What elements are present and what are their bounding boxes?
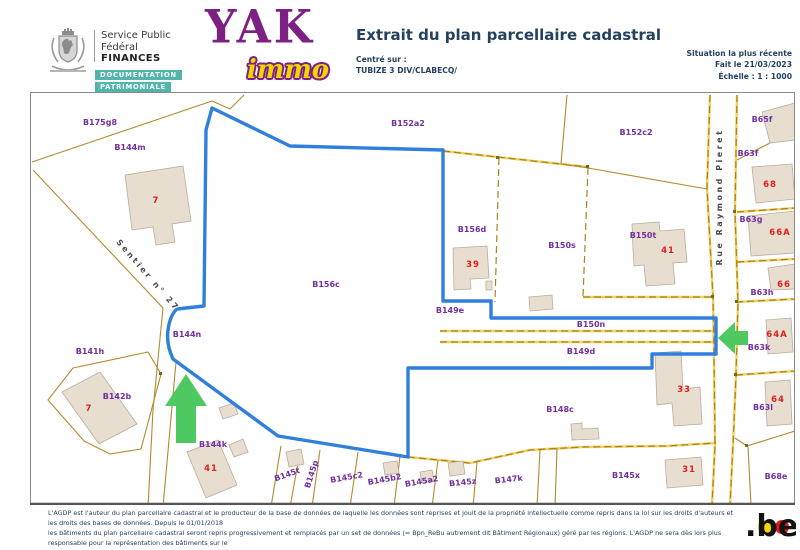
title-block: Extrait du plan parcellaire cadastral Ce… (356, 26, 661, 76)
parcel-label: B63h (751, 288, 774, 297)
meta-scale: Échelle : 1 : 1000 (687, 71, 792, 82)
parcel-label: B144m (114, 143, 145, 152)
meta-situation: Situation la plus récente (687, 48, 792, 59)
parcel-label: B148c (546, 405, 574, 414)
house-number: 64 (771, 395, 785, 405)
parcel-label: B68e (765, 472, 788, 481)
dot-be-logo: .be (744, 503, 796, 545)
parcel-label: B150n (577, 320, 606, 329)
parcel-label: B141h (76, 347, 105, 356)
house-number: 66 (777, 280, 791, 290)
parcel-label: B63f (738, 149, 759, 158)
disclaimer-line1: L'AGDP est l'auteur du plan parcellaire … (48, 509, 736, 529)
house-number: 68 (763, 180, 777, 190)
centered-on: Centré sur : TUBIZE 3 DIV/CLABECQ/ (356, 54, 661, 76)
parcel-label: B145x (612, 471, 641, 480)
header: Service Public Fédéral FINANCES DOCUMENT… (0, 0, 800, 92)
badge-patrimoniale: PATRIMONIALE (95, 82, 171, 93)
agency-line1: Service Public (101, 30, 171, 42)
page-title: Extrait du plan parcellaire cadastral (356, 26, 661, 44)
house-number: 64A (766, 330, 787, 340)
brand-sub: immo (247, 55, 329, 85)
parcel-label: B175g8 (83, 118, 118, 127)
disclaimer-text: L'AGDP est l'auteur du plan parcellaire … (48, 509, 736, 550)
parcel-label: B150t (630, 231, 657, 240)
map-meta: Situation la plus récente Fait le 21/03/… (687, 48, 792, 82)
parcel-label: B144k (199, 440, 228, 449)
map-svg: B175g8B144mB152a2B152c2B65fB63fB156dB150… (30, 92, 795, 505)
cadastral-map: B175g8B144mB152a2B152c2B65fB63fB156dB150… (30, 92, 795, 505)
svg-text:.be: .be (745, 509, 796, 544)
agency-line2: Fédéral (101, 42, 171, 54)
parcel-label: B65f (752, 115, 773, 124)
house-number: 7 (86, 404, 93, 414)
house-number: 41 (661, 246, 675, 256)
house-number: 7 (153, 196, 160, 206)
parcel-label: B149d (567, 347, 596, 356)
parcel-label: B144n (173, 330, 202, 339)
yak-immo-logo: YAK immo (185, 6, 335, 99)
parcel-label: B142b (103, 392, 132, 401)
agency-badges: DOCUMENTATION PATRIMONIALE (95, 62, 182, 94)
house-number: 41 (204, 464, 218, 474)
parcel-label: B152c2 (619, 128, 652, 137)
brand-name: YAK (185, 5, 335, 51)
house-number: 66A (769, 228, 790, 238)
meta-date: Fait le 21/03/2023 (687, 59, 792, 70)
parcel-label: B152a2 (391, 119, 425, 128)
parcel-label: B149e (436, 306, 465, 315)
parcel-label: B150s (548, 241, 576, 250)
house-number: 39 (466, 260, 480, 270)
parcel-label: B63k (748, 343, 771, 352)
centered-on-value: TUBIZE 3 DIV/CLABECQ/ (356, 66, 457, 75)
coat-of-arms-icon (48, 28, 88, 74)
divider (94, 30, 95, 62)
centered-on-label: Centré sur : (356, 55, 407, 64)
parcel-label: B156d (458, 225, 487, 234)
parcel-label: B156c (312, 280, 340, 289)
page: Service Public Fédéral FINANCES DOCUMENT… (0, 0, 800, 550)
street-label: Rue Raymond Pieret (715, 129, 724, 266)
parcel-label: B63g (740, 215, 763, 224)
badge-documentation: DOCUMENTATION (95, 70, 182, 81)
house-number: 31 (682, 465, 696, 475)
disclaimer-line2: les bâtiments du plan parcellaire cadast… (48, 529, 736, 549)
house-number: 33 (677, 385, 691, 395)
